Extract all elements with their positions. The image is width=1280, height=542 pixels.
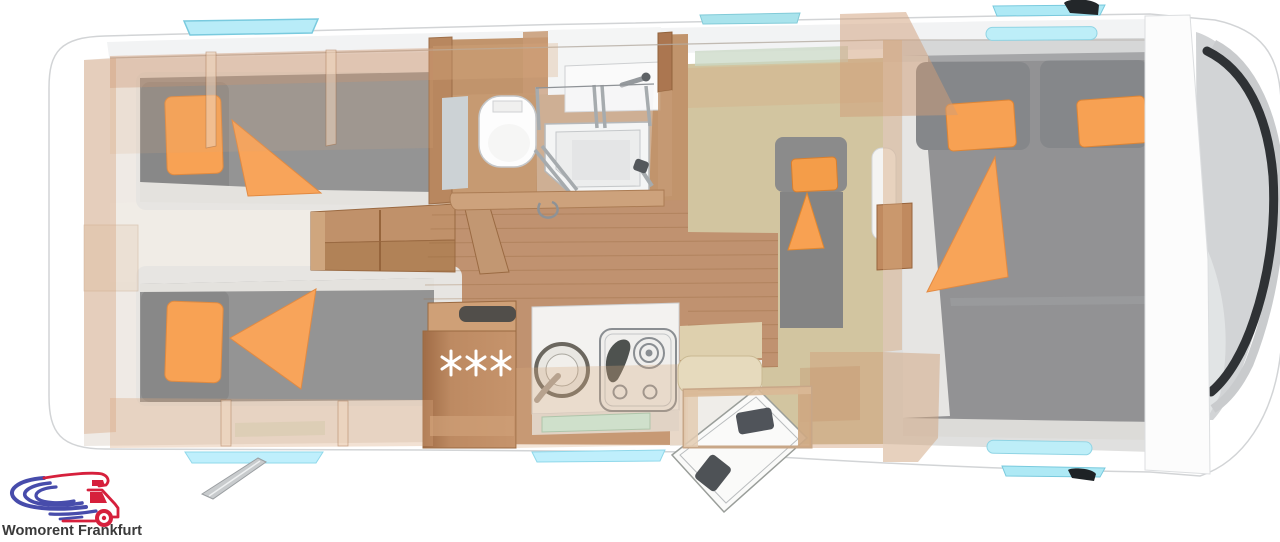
svg-text:Womorent Frankfurt: Womorent Frankfurt [2,523,142,537]
